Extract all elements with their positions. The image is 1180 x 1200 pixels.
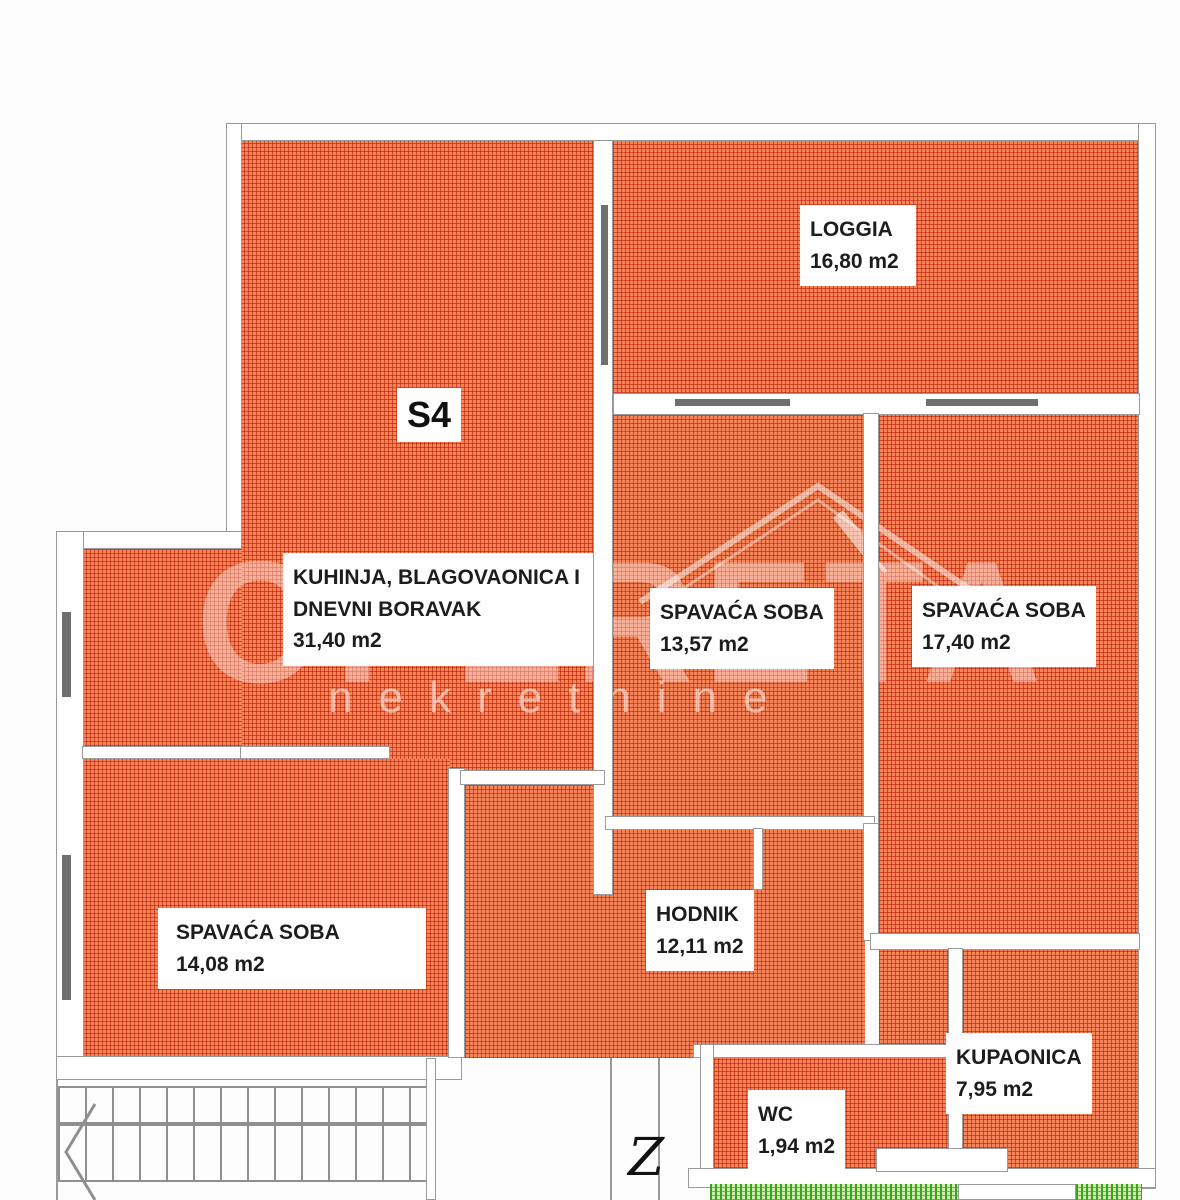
compass-label: Z xyxy=(628,1128,664,1188)
label-bedroom-left: SPAVAĆA SOBA 14,08 m2 xyxy=(158,908,426,989)
label-wc: WC 1,94 m2 xyxy=(748,1090,845,1171)
room-name: SPAVAĆA SOBA xyxy=(176,917,416,949)
room-name: SPAVAĆA SOBA xyxy=(660,597,824,629)
room-name: KUPAONICA xyxy=(956,1042,1082,1074)
room-name: HODNIK xyxy=(656,899,744,931)
room-area: 1,94 m2 xyxy=(758,1131,835,1163)
room-area: 7,95 m2 xyxy=(956,1074,1082,1106)
label-bathroom: KUPAONICA 7,95 m2 xyxy=(946,1033,1092,1114)
label-kitchen: KUHINJA, BLAGOVAONICA I DNEVNI BORAVAK 3… xyxy=(283,553,593,666)
room-name: KUHINJA, BLAGOVAONICA I xyxy=(293,562,583,594)
room-area: 14,08 m2 xyxy=(176,949,416,981)
floor-plan: OPERETA nekretnine S4 L xyxy=(0,0,1180,1200)
room-area: 12,11 m2 xyxy=(656,931,744,963)
room-name: LOGGIA xyxy=(810,214,906,246)
label-loggia: LOGGIA 16,80 m2 xyxy=(800,205,916,286)
room-name: DNEVNI BORAVAK xyxy=(293,594,583,626)
room-area: 31,40 m2 xyxy=(293,625,583,657)
room-area: 17,40 m2 xyxy=(922,627,1086,659)
label-bedroom-top: SPAVAĆA SOBA 13,57 m2 xyxy=(650,588,834,669)
label-bedroom-right: SPAVAĆA SOBA 17,40 m2 xyxy=(912,586,1096,667)
unit-label: S4 xyxy=(397,388,461,442)
room-name: WC xyxy=(758,1099,835,1131)
label-hallway: HODNIK 12,11 m2 xyxy=(646,890,754,971)
room-area: 16,80 m2 xyxy=(810,246,906,278)
room-name: SPAVAĆA SOBA xyxy=(922,595,1086,627)
room-area: 13,57 m2 xyxy=(660,629,824,661)
